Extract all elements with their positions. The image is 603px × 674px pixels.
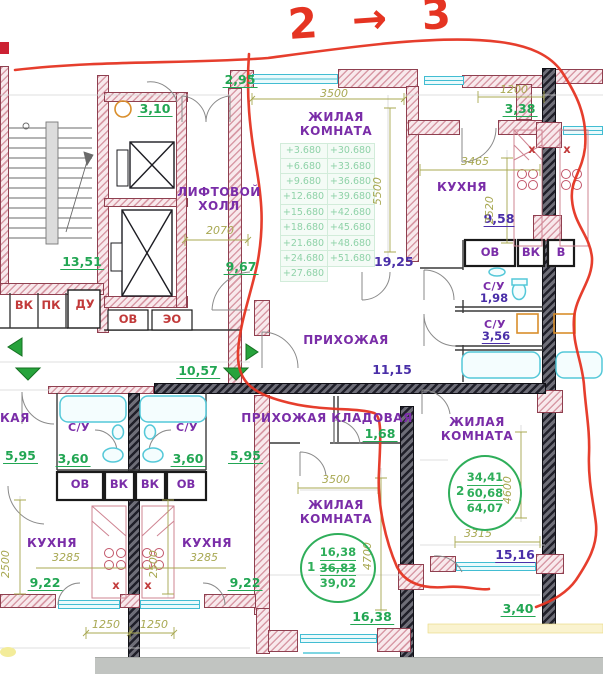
x-mark-1: х <box>528 143 535 156</box>
dim-3500-top: 3500 <box>320 88 348 100</box>
apartment-stamp-2: 2 34,41 60,68 64,07 <box>448 455 522 531</box>
dim-2500-b: 2500 <box>148 550 160 578</box>
stamp-total-area: 39,02 <box>320 576 356 590</box>
dim-3285-b: 3285 <box>190 552 218 564</box>
elev-cell: +18.680 <box>280 219 328 235</box>
balcony-band <box>428 624 603 633</box>
bathtub-right <box>462 352 540 378</box>
room-partial-left: КАЯ <box>0 411 30 425</box>
elev-cell: +51.680 <box>327 250 375 266</box>
area-storage: 1,68 <box>363 427 398 442</box>
area-entry: 2,95 <box>223 73 258 88</box>
elev-cell: +45.680 <box>327 219 375 235</box>
shaft-vk-red: ВК <box>15 299 33 312</box>
area-balcony: 15,16 <box>495 548 535 563</box>
elevator-shafts <box>111 142 174 296</box>
room-living-top: ЖИЛАЯ КОМНАТА <box>290 110 382 139</box>
room-wc-l1: С/У <box>68 421 90 434</box>
area-br-small: 3,40 <box>501 602 536 617</box>
dim-3500-bottom: 3500 <box>322 474 350 486</box>
door-arcs <box>8 82 496 605</box>
bathtub-left-1 <box>60 396 126 422</box>
shaft-vk-2: ВК <box>141 478 159 491</box>
stamp-living-area: 16,38 <box>320 545 356 560</box>
area-hall-upper: 11,15 <box>372 363 412 377</box>
room-hall-upper: ПРИХОЖАЯ <box>303 333 389 347</box>
elev-cell: +42.680 <box>327 204 375 220</box>
section-arrows <box>8 338 258 380</box>
column-marker <box>115 101 131 117</box>
bathtub-left-2 <box>140 396 206 422</box>
stamp-mid-area: 60,68 <box>467 486 503 501</box>
elev-cell: +39.680 <box>327 189 375 205</box>
area-corridor-mid: 10,57 <box>176 364 220 379</box>
area-left-room-b: 5,95 <box>228 449 263 464</box>
toilet-tank <box>512 279 527 285</box>
elev-cell: +27.680 <box>280 266 328 282</box>
shaft-vk-3: ВК <box>522 246 540 259</box>
area-kitchen-bl1: 9,22 <box>28 576 63 591</box>
sink-left-1 <box>103 448 123 462</box>
elev-cell-empty <box>327 266 375 282</box>
room-living-bc: ЖИЛАЯ КОМНАТА <box>290 498 382 527</box>
yellow-mark <box>0 647 16 657</box>
arrow-left-icon <box>8 338 22 356</box>
arrow-right-icon <box>246 344 258 360</box>
door-double-entry <box>182 96 230 122</box>
area-wc-l1: 3,60 <box>56 452 91 467</box>
doors-wc-left <box>95 430 171 452</box>
room-kitchen-bl2: КУХНЯ <box>182 536 232 550</box>
door-hall-upper <box>262 332 298 368</box>
shaft-v-3: В <box>557 246 566 259</box>
elev-cell: +9.680 <box>280 173 328 189</box>
area-bc-window: 16,38 <box>350 610 394 625</box>
door-bl-room <box>8 486 44 524</box>
shaft-vk-1: ВК <box>110 478 128 491</box>
elev-cell: +21.680 <box>280 235 328 251</box>
shaft-ov-red: ОВ <box>119 313 138 326</box>
room-kitchen-bl1: КУХНЯ <box>27 536 77 550</box>
apartment-stamp-1: 1 16,38 36,83 39,02 <box>300 533 376 603</box>
area-stair: 3,10 <box>138 102 173 117</box>
elev-cell: +48.680 <box>327 235 375 251</box>
red-corner-square <box>0 42 9 54</box>
area-wc-r1: 1,98 <box>480 292 508 305</box>
dim-1250-b: 1250 <box>140 619 168 631</box>
toilet-left-1 <box>113 425 124 439</box>
elev-cell: +3.680 <box>280 143 328 159</box>
door-wc-r2 <box>424 314 456 346</box>
x-mark-4: х <box>144 579 151 592</box>
toilet-left-2 <box>145 425 156 439</box>
dim-3285-a: 3285 <box>52 552 80 564</box>
stairs <box>8 122 93 244</box>
room-hall-lower: ПРИХОЖАЯ <box>241 411 327 425</box>
dim-1250-a: 1250 <box>92 619 120 631</box>
stamp-old-area: 36,83 <box>320 561 356 576</box>
room-kitchen-top: КУХНЯ <box>437 180 487 194</box>
area-niche: 3,38 <box>503 102 538 117</box>
elev-cell: +24.680 <box>280 250 328 266</box>
elev-cell: +12.680 <box>280 189 328 205</box>
area-left-room-a: 5,95 <box>3 449 38 464</box>
door-wc-r1 <box>424 270 454 300</box>
stamp-living-area: 34,41 <box>467 470 503 485</box>
elev-cell: +36.680 <box>327 173 375 189</box>
arrow-down-1-icon <box>16 368 40 380</box>
dim-2520: 2520 <box>484 196 496 224</box>
stamp-total-area: 64,07 <box>467 501 503 515</box>
dim-2500-a: 2500 <box>0 550 12 578</box>
door-lift-hall <box>212 272 250 310</box>
bottom-scrollbar[interactable] <box>95 657 603 674</box>
shaft-du-red: ДУ <box>75 298 94 311</box>
x-mark-3: х <box>112 579 119 592</box>
area-wc-l2: 3,60 <box>171 452 206 467</box>
area-kitchen-bl2: 9,22 <box>228 576 263 591</box>
dim-1200: 1200 <box>500 84 528 96</box>
room-storage: КЛАДОВАЯ <box>331 411 413 425</box>
door-br-entry <box>422 390 450 414</box>
room-living-br: ЖИЛАЯ КОМНАТА <box>431 415 523 444</box>
area-corridor: 13,51 <box>60 255 104 270</box>
door-br-balcony <box>434 556 462 572</box>
floor-plan: 2 → 3 +3.680+30.680 +6.680+33.680 +9.680… <box>0 0 603 674</box>
shaft-ov-2: ОВ <box>177 478 196 491</box>
elev-cell: +6.680 <box>280 158 328 174</box>
sink-left-2 <box>143 448 163 462</box>
area-wc-r2: 3,56 <box>482 330 510 344</box>
elevation-table: +3.680+30.680 +6.680+33.680 +9.680+36.68… <box>280 143 374 282</box>
dim-5500: 5500 <box>372 177 384 205</box>
shaft-pk-red: ПК <box>41 299 60 312</box>
dim-2070: 2070 <box>206 225 234 237</box>
elev-cell: +33.680 <box>327 158 375 174</box>
shaft-ov-1: ОВ <box>71 478 90 491</box>
basin-right <box>489 268 505 276</box>
shaft-ov-3: ОВ <box>481 246 500 259</box>
dim-3465: 3465 <box>461 156 489 168</box>
area-lift-hall: 9,67 <box>224 260 259 275</box>
shaft-eo-red: ЭО <box>163 313 181 326</box>
room-lift-hall: ЛИФТОВОЙ ХОЛЛ <box>173 185 265 214</box>
x-mark-2: х <box>563 143 570 156</box>
elev-cell: +15.680 <box>280 204 328 220</box>
apartment-number: 1 <box>307 560 315 575</box>
elev-cell: +30.680 <box>327 143 375 159</box>
room-wc-l2: С/У <box>176 421 198 434</box>
apartment-number: 2 <box>456 484 464 499</box>
area-living-top: 19,25 <box>374 255 414 269</box>
door-top-left <box>147 82 177 102</box>
